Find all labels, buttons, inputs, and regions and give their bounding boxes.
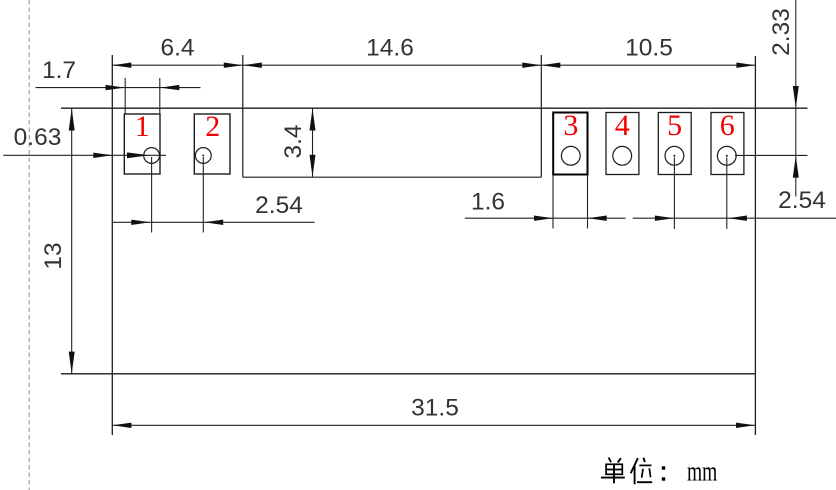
svg-text:1.6: 1.6: [471, 189, 505, 216]
svg-text:4: 4: [615, 109, 630, 142]
svg-text:mm: mm: [687, 456, 717, 488]
svg-text:10.5: 10.5: [625, 35, 673, 62]
svg-text:1: 1: [135, 110, 150, 143]
svg-text:13: 13: [40, 242, 67, 269]
svg-text:6.4: 6.4: [160, 35, 194, 62]
svg-text:3: 3: [563, 109, 578, 142]
svg-text:1.7: 1.7: [42, 57, 76, 84]
svg-text:2.33: 2.33: [768, 8, 795, 56]
svg-text:0.63: 0.63: [14, 124, 62, 151]
svg-text:2: 2: [205, 110, 220, 143]
svg-text:2.54: 2.54: [778, 187, 826, 214]
svg-text:5: 5: [667, 109, 682, 142]
svg-text:14.6: 14.6: [366, 35, 414, 62]
svg-text:2.54: 2.54: [255, 192, 303, 219]
svg-text:6: 6: [720, 109, 735, 142]
svg-text:31.5: 31.5: [411, 395, 459, 422]
svg-text:3.4: 3.4: [280, 124, 307, 158]
